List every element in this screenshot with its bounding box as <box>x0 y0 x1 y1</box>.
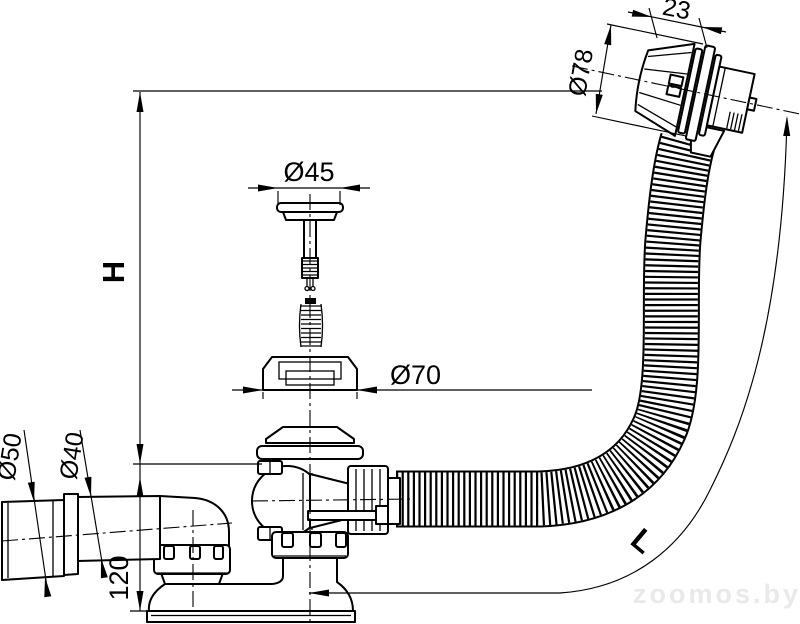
dim-label-dia40: Ø40 <box>55 430 90 481</box>
dim-label-dia50: Ø50 <box>0 431 28 482</box>
technical-drawing-page: H 120 Ø50 Ø40 Ø45 Ø70 Ø78 23 L zoomos.by <box>0 0 800 624</box>
dim-label-height: H <box>96 261 131 283</box>
spring <box>300 298 323 347</box>
dim-label-dia45: Ø45 <box>283 157 334 187</box>
dim-label-23: 23 <box>660 0 693 26</box>
corrugated-hose <box>396 141 688 499</box>
dim-label-hose-length: L <box>624 521 661 560</box>
dim-label-dia70: Ø70 <box>390 360 441 390</box>
dim-dia70-line <box>232 390 592 399</box>
pipe-collar <box>64 494 78 575</box>
drain-assembly <box>2 461 400 622</box>
dim-label-120: 120 <box>104 555 134 600</box>
elbow-union-nut <box>154 545 230 574</box>
technical-drawing: H 120 Ø50 Ø40 Ø45 Ø70 Ø78 23 L zoomos.by <box>0 0 800 624</box>
overflow-head <box>627 33 765 163</box>
outlet-pipe <box>77 496 160 561</box>
watermark: zoomos.by <box>633 579 800 609</box>
drain-base-plate <box>147 611 355 622</box>
overflow-rod <box>308 511 384 520</box>
